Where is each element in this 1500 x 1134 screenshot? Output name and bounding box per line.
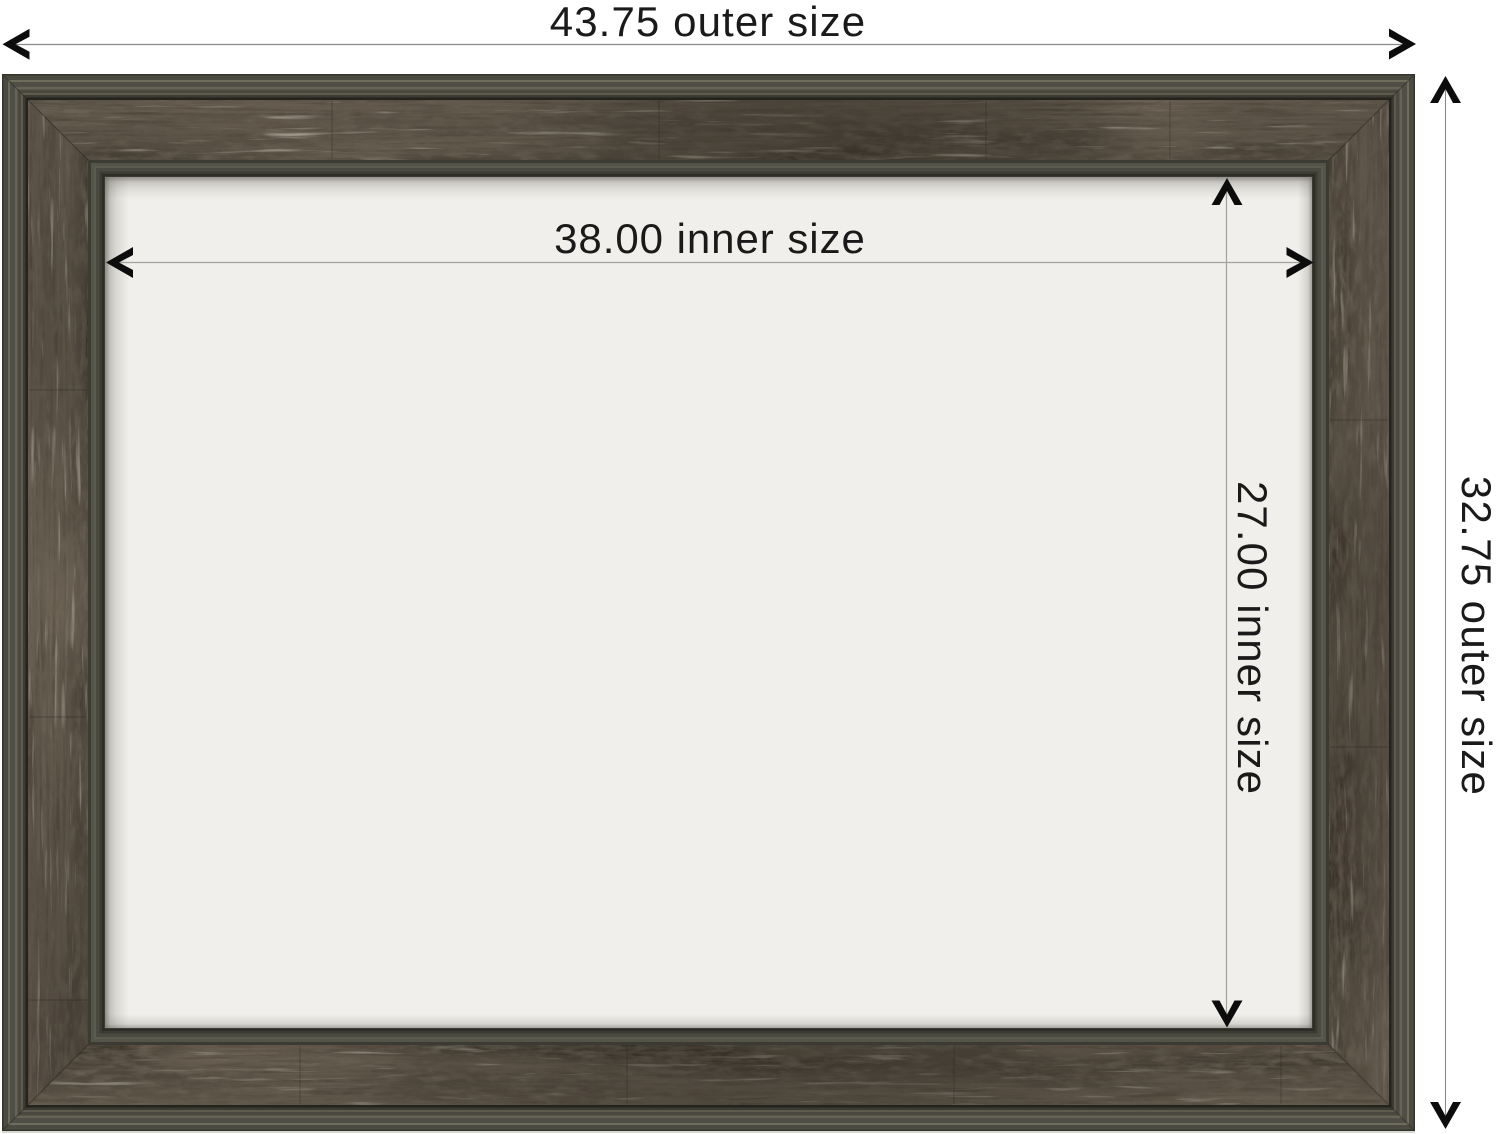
svg-text:38.00 inner size: 38.00 inner size [554,215,866,262]
svg-text:32.75 outer size: 32.75 outer size [1453,476,1500,796]
svg-text:27.00 inner size: 27.00 inner size [1229,481,1276,795]
svg-text:43.75 outer size: 43.75 outer size [550,0,866,45]
